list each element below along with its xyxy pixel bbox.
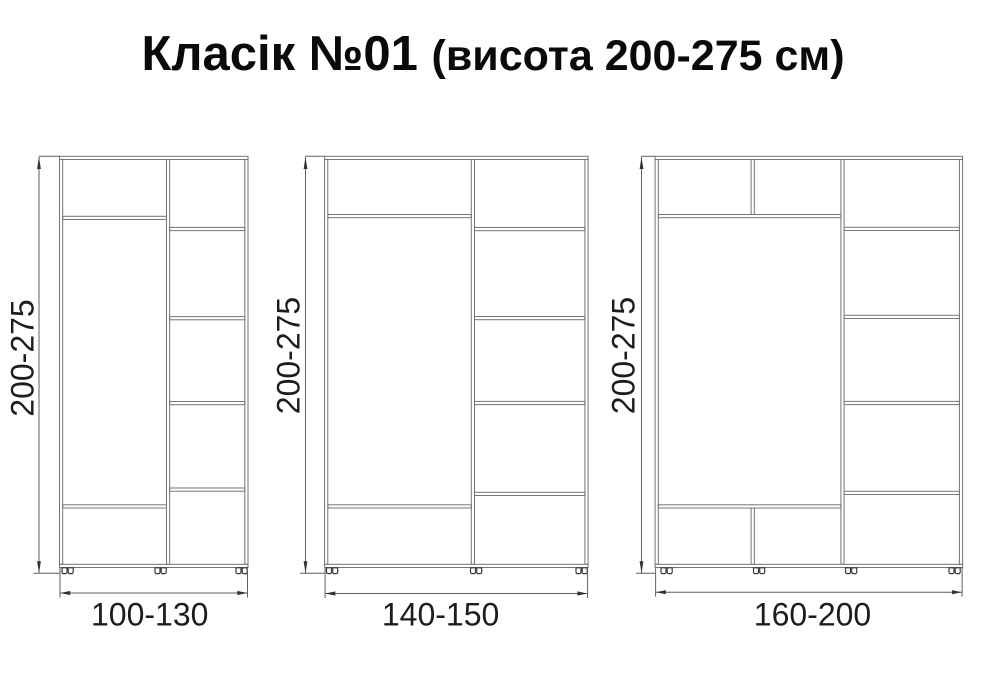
svg-text:160-200: 160-200 <box>754 597 871 633</box>
svg-text:100-130: 100-130 <box>91 597 208 633</box>
svg-text:200-275: 200-275 <box>605 297 641 414</box>
svg-text:200-275: 200-275 <box>270 297 306 414</box>
svg-text:Класік №01 (висота 200-275 см): Класік №01 (висота 200-275 см) <box>141 27 844 81</box>
svg-text:200-275: 200-275 <box>5 299 41 416</box>
svg-text:140-150: 140-150 <box>382 597 499 633</box>
